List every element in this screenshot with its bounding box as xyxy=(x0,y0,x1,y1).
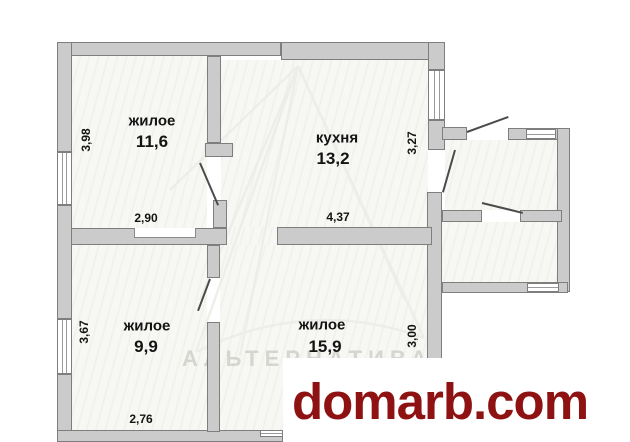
room-area-living-top: 11,6 xyxy=(136,132,168,152)
room-label-kitchen: кухня xyxy=(316,130,358,147)
floor-plan: АЛЬТЕРНАТИВА жилое 11,6 кухня 13,2 жило xyxy=(0,0,630,442)
dimension-living-top-bottom: 2,90 xyxy=(134,211,157,225)
room-area-living-left: 9,9 xyxy=(134,337,158,357)
wall-segment xyxy=(57,430,283,442)
dimension-living-left-left: 3,67 xyxy=(77,320,91,343)
site-watermark-text: domarb.com xyxy=(292,372,588,431)
wall-segment xyxy=(207,56,221,143)
wall-segment xyxy=(207,322,220,432)
wall-segment xyxy=(427,192,442,361)
room-area-kitchen: 13,2 xyxy=(316,149,349,169)
window-symbol xyxy=(527,283,559,292)
dimension-living-top-left: 3,98 xyxy=(79,128,93,151)
wall-segment xyxy=(57,205,72,319)
wall-segment xyxy=(57,42,281,56)
wall-segment xyxy=(277,227,432,245)
room-label-living-top: жилое xyxy=(129,113,176,130)
room-area-living-right: 15,9 xyxy=(308,337,341,357)
wall-segment xyxy=(57,42,72,152)
dimension-kitchen-right: 3,27 xyxy=(405,131,419,154)
wall-niche xyxy=(134,228,196,238)
dimension-kitchen-bottom: 4,37 xyxy=(326,210,349,224)
wall-segment xyxy=(442,210,482,222)
dimension-living-right-right: 3,00 xyxy=(405,324,419,347)
wall-segment xyxy=(205,143,233,157)
dimension-living-left-bottom: 2,76 xyxy=(129,412,152,426)
wall-segment xyxy=(213,200,227,228)
window-symbol xyxy=(428,70,445,120)
window-symbol xyxy=(57,319,72,374)
window-symbol xyxy=(526,129,556,139)
window-symbol xyxy=(57,152,72,205)
window-symbol xyxy=(260,430,283,437)
room-label-living-left: жилое xyxy=(124,318,171,335)
wall-segment xyxy=(207,245,220,278)
wall-segment xyxy=(281,42,445,60)
room-label-living-right: жилое xyxy=(299,317,346,334)
wall-segment xyxy=(428,42,445,70)
wall-segment xyxy=(520,210,562,222)
wall-segment xyxy=(442,127,467,140)
